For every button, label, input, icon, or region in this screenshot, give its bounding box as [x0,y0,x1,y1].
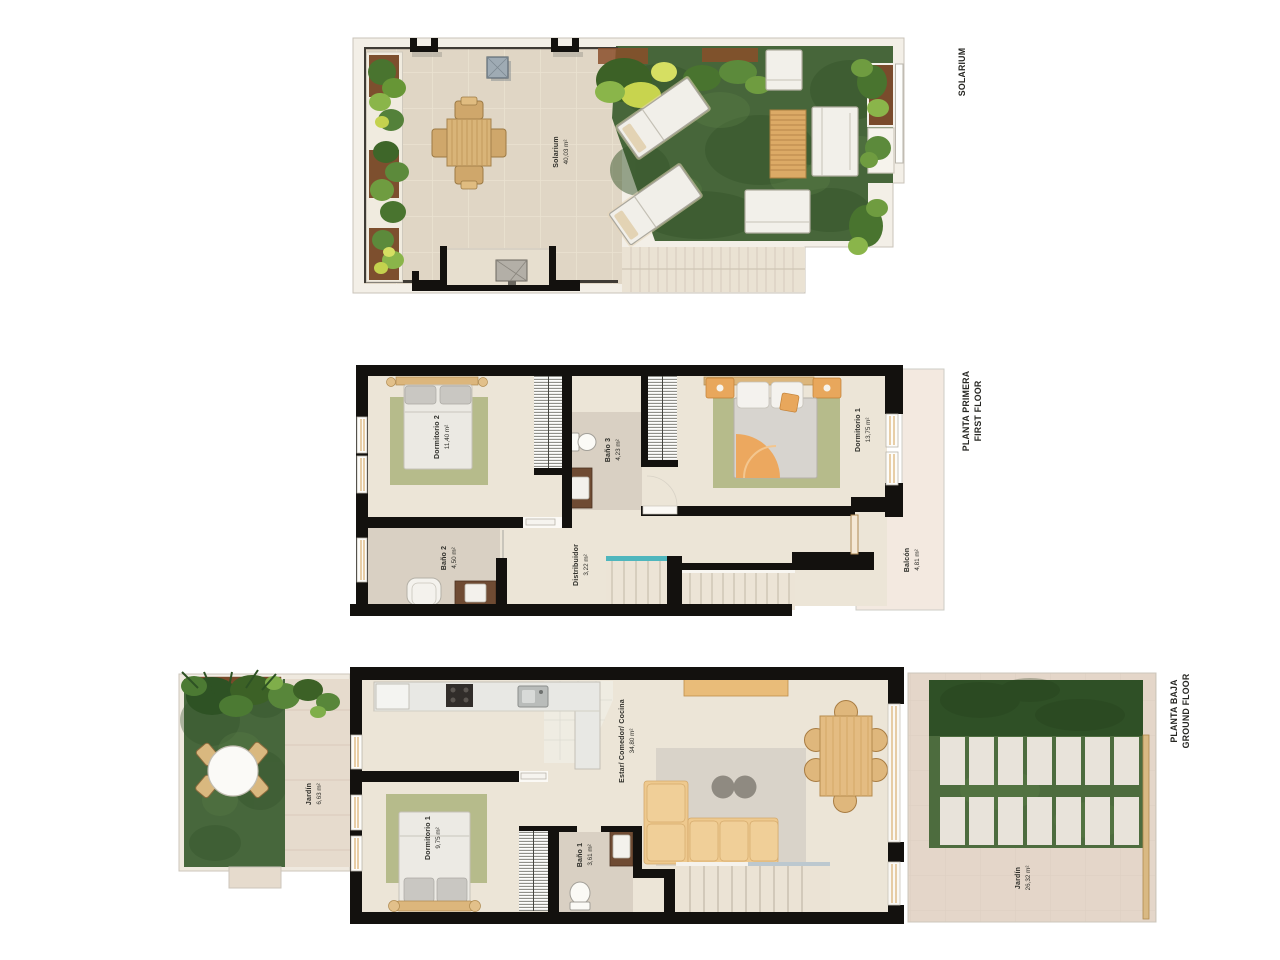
svg-text:Baño 3: Baño 3 [605,438,612,463]
svg-text:Baño 1: Baño 1 [577,843,584,868]
svg-text:40,03 m²: 40,03 m² [563,140,570,165]
svg-text:PLANTA PRIMERA: PLANTA PRIMERA [961,370,971,451]
svg-text:PLANTA BAJA: PLANTA BAJA [1169,679,1179,743]
svg-text:Jardín: Jardín [306,783,313,805]
svg-text:Dormitorio 1: Dormitorio 1 [425,816,432,860]
svg-text:13,75 m²: 13,75 m² [865,418,872,443]
svg-text:SOLARIUM: SOLARIUM [957,48,967,97]
svg-text:FIRST FLOOR: FIRST FLOOR [973,380,983,441]
svg-text:34,80 m²: 34,80 m² [629,729,636,754]
svg-text:Dormitorio 2: Dormitorio 2 [434,415,441,459]
svg-text:4,81 m²: 4,81 m² [914,549,921,570]
svg-text:6,63 m²: 6,63 m² [316,783,323,804]
svg-text:Solarium: Solarium [553,136,560,168]
svg-text:4,23 m²: 4,23 m² [615,439,622,460]
svg-text:Distribuidor: Distribuidor [573,544,580,586]
svg-text:Jardín: Jardín [1015,867,1022,889]
svg-text:9,75 m²: 9,75 m² [435,827,442,848]
svg-text:3,22 m²: 3,22 m² [583,554,590,575]
svg-text:3,61 m²: 3,61 m² [587,844,594,865]
svg-text:Balcón: Balcón [904,548,911,573]
svg-text:GROUND FLOOR: GROUND FLOOR [1181,673,1191,748]
svg-text:11,40 m²: 11,40 m² [444,425,451,449]
svg-text:26,32 m²: 26,32 m² [1025,866,1032,891]
svg-text:Baño 2: Baño 2 [441,546,448,571]
svg-text:4,50 m²: 4,50 m² [451,547,458,568]
svg-text:Estar/ Comedor/ Cocina: Estar/ Comedor/ Cocina [619,699,626,783]
svg-text:Dormitorio 1: Dormitorio 1 [855,408,862,452]
